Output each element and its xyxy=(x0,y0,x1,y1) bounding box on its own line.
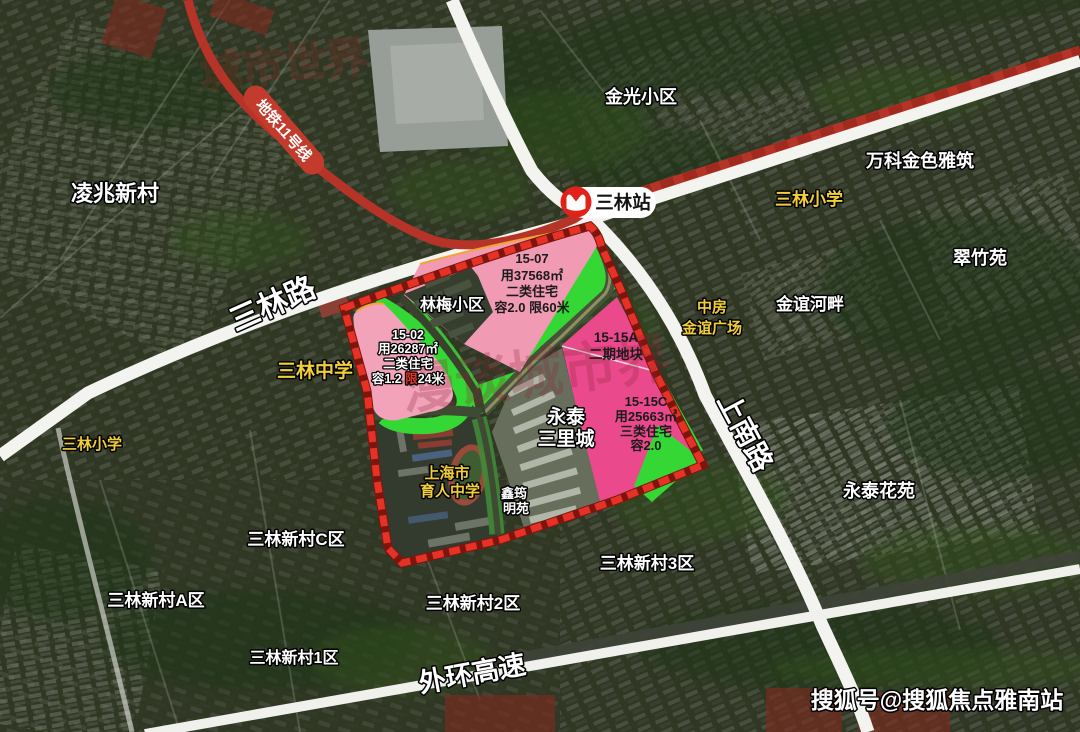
svg-text:15-15A: 15-15A xyxy=(594,330,639,345)
svg-text:万科金色雅筑: 万科金色雅筑 xyxy=(865,150,974,171)
svg-text:三林中学: 三林中学 xyxy=(277,359,353,382)
svg-text:搜狐号@搜狐焦点雅南站: 搜狐号@搜狐焦点雅南站 xyxy=(811,687,1063,713)
svg-text:用26287㎡: 用26287㎡ xyxy=(377,341,438,356)
svg-text:容1.2 限24米: 容1.2 限24米 xyxy=(371,371,445,386)
svg-text:三类住宅: 三类住宅 xyxy=(620,424,672,439)
svg-text:鑫筠: 鑫筠 xyxy=(500,486,527,501)
svg-text:二类住宅: 二类住宅 xyxy=(506,284,558,299)
svg-text:三林小学: 三林小学 xyxy=(775,189,843,209)
svg-text:中房: 中房 xyxy=(697,298,727,316)
svg-text:15-15C: 15-15C xyxy=(625,394,668,409)
svg-text:翠竹苑: 翠竹苑 xyxy=(953,247,1007,268)
svg-text:明苑: 明苑 xyxy=(503,501,529,516)
svg-text:凌兆新村: 凌兆新村 xyxy=(71,181,159,206)
svg-text:用25663㎡: 用25663㎡ xyxy=(614,409,677,424)
svg-text:三林小学: 三林小学 xyxy=(62,435,122,453)
svg-text:三里城: 三里城 xyxy=(537,427,594,450)
svg-text:三林新村3区: 三林新村3区 xyxy=(600,553,694,573)
svg-text:三林新村A区: 三林新村A区 xyxy=(107,590,204,610)
svg-text:林梅小区: 林梅小区 xyxy=(420,295,484,314)
svg-text:三林新村2区: 三林新村2区 xyxy=(426,593,520,613)
svg-text:上海市: 上海市 xyxy=(424,464,469,482)
svg-text:永泰: 永泰 xyxy=(546,405,586,428)
svg-text:金谊广场: 金谊广场 xyxy=(681,319,742,337)
svg-text:永泰花苑: 永泰花苑 xyxy=(842,480,915,501)
svg-text:用37568㎡: 用37568㎡ xyxy=(500,268,563,283)
svg-text:金谊河畔: 金谊河畔 xyxy=(775,294,844,314)
svg-text:容2.0 限60米: 容2.0 限60米 xyxy=(493,300,570,315)
svg-text:育人中学: 育人中学 xyxy=(420,482,480,500)
svg-text:三林站: 三林站 xyxy=(595,192,651,213)
svg-text:15-07: 15-07 xyxy=(515,251,548,266)
svg-text:容2.0: 容2.0 xyxy=(629,438,661,453)
svg-text:二期地块: 二期地块 xyxy=(589,346,643,362)
svg-text:三林新村1区: 三林新村1区 xyxy=(250,648,339,667)
svg-text:二类住宅: 二类住宅 xyxy=(383,356,434,371)
svg-text:15-02: 15-02 xyxy=(392,328,424,342)
svg-text:三林新村C区: 三林新村C区 xyxy=(247,529,344,549)
svg-text:金光小区: 金光小区 xyxy=(604,86,677,107)
